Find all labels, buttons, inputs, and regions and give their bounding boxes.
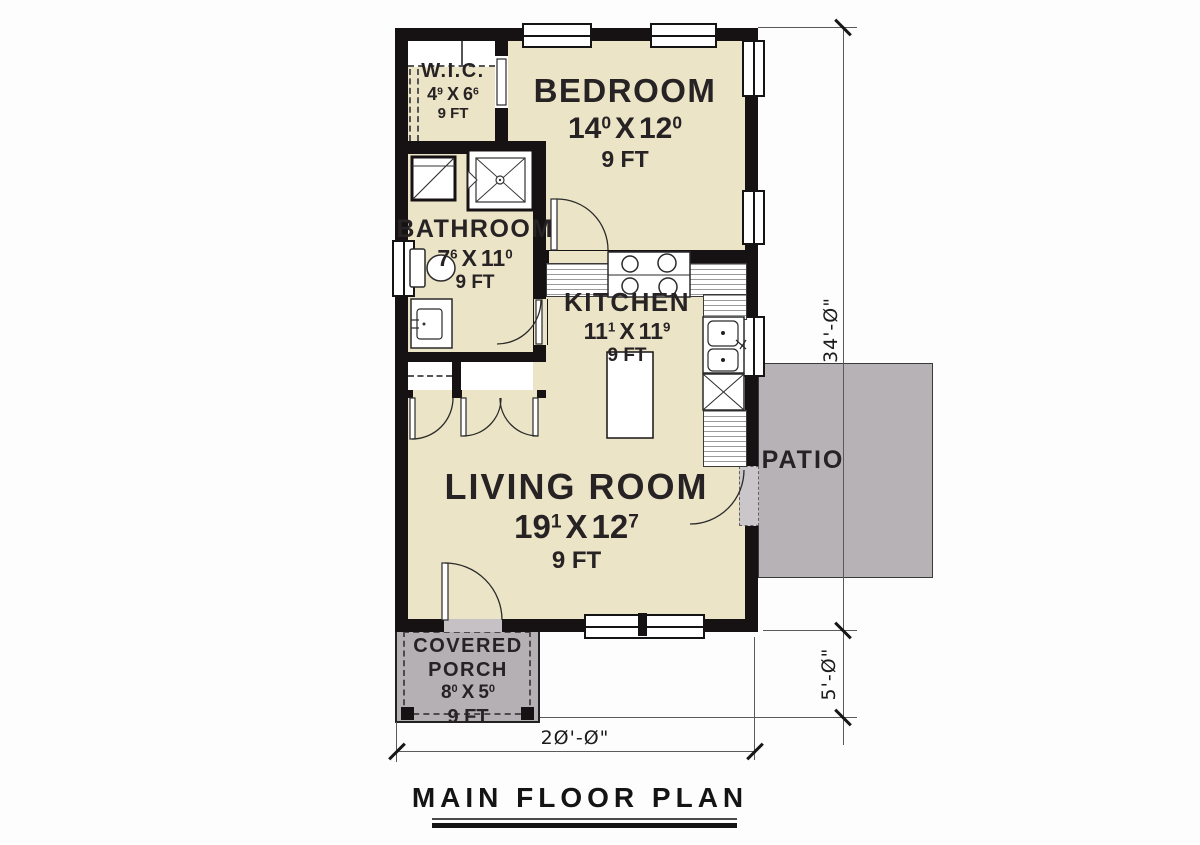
- bedroom-name: BEDROOM: [534, 72, 717, 111]
- dim-text-porch-depth: 5'-Ø": [818, 634, 838, 714]
- porch-size: 80X50: [441, 682, 495, 705]
- dim-ext-porch-bottom: [540, 717, 857, 718]
- dim-text-overall-width: 2Ø'-Ø": [515, 727, 635, 747]
- plan-title: MAIN FLOOR PLAN: [380, 782, 780, 814]
- kitchen-name: KITCHEN: [564, 287, 690, 318]
- label-kitchen: KITCHEN 111X119 9 FT: [543, 287, 711, 367]
- label-bathroom: BATHROOM 76X110 9 FT: [400, 215, 550, 294]
- dim-ext-left-bottom: [396, 722, 397, 762]
- dim-text-overall-depth: 34'-Ø": [820, 290, 840, 370]
- floor-plan-canvas: W.I.C. 49X66 9 FT BEDROOM 140X120 9 FT B…: [0, 0, 1200, 845]
- kitchen-ceiling: 9 FT: [607, 345, 646, 367]
- living-room-ceiling: 9 FT: [552, 547, 601, 575]
- bedroom-ceiling: 9 FT: [601, 146, 648, 173]
- wic-size: 49X66: [427, 84, 479, 105]
- door-bathroom: [497, 300, 542, 344]
- door-closet-left: [410, 398, 453, 439]
- bathroom-size: 76X110: [437, 245, 512, 272]
- porch-ceiling: 9 FT: [447, 705, 488, 729]
- label-patio: PATIO: [758, 446, 848, 476]
- stove-burner: [658, 254, 676, 272]
- patio-name: PATIO: [762, 446, 845, 476]
- wic-name: W.I.C.: [421, 60, 484, 84]
- dim-ext-right-bottom: [754, 637, 755, 760]
- kitchen-size: 111X119: [584, 318, 671, 345]
- label-wic: W.I.C. 49X66 9 FT: [406, 60, 500, 123]
- bedroom-size: 140X120: [568, 111, 682, 146]
- porch-name-line1: COVERED: [413, 634, 522, 658]
- porch-name-line2: PORCH: [428, 658, 508, 682]
- dishwasher: [703, 374, 744, 410]
- title-underline-thin: [432, 818, 737, 820]
- vanity-sink: [411, 299, 452, 348]
- wic-ceiling: 9 FT: [438, 105, 469, 123]
- living-room-name: LIVING ROOM: [445, 466, 709, 508]
- laundry-unit: [412, 157, 455, 200]
- label-bedroom: BEDROOM 140X120 9 FT: [500, 72, 750, 173]
- bathroom-ceiling: 9 FT: [455, 272, 494, 294]
- label-living-room: LIVING ROOM 191X127 9 FT: [408, 466, 745, 576]
- stove-burner: [622, 256, 638, 272]
- dim-line-bottom-horizontal: [397, 751, 755, 752]
- bathroom-name: BATHROOM: [396, 215, 553, 245]
- door-bedroom: [551, 199, 608, 250]
- living-room-size: 191X127: [514, 508, 639, 547]
- title-underline-thick: [432, 823, 737, 828]
- door-closet-right-double: [461, 398, 538, 436]
- label-covered-porch: COVERED PORCH 80X50 9 FT: [398, 634, 538, 729]
- dim-line-right-vertical: [843, 28, 844, 745]
